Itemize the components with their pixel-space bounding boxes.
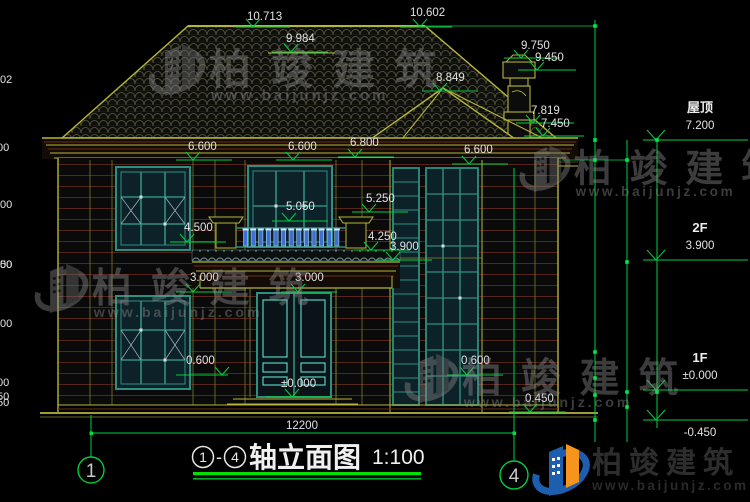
- baluster: [289, 230, 293, 246]
- chain-dimension: 3402: [0, 74, 12, 86]
- chain-dimension: 600: [0, 377, 9, 389]
- chain-dimension: 3900: [0, 318, 12, 330]
- title-underline-thin: [193, 478, 421, 480]
- level-value: 3.900: [686, 240, 715, 252]
- level-marker: 屋顶7.200: [643, 100, 748, 140]
- logo-building-orange: [566, 444, 579, 488]
- elevation-value: 7.450: [541, 118, 570, 130]
- elevation-value: 6.600: [464, 144, 493, 156]
- logo-building-blue: [549, 446, 563, 496]
- footer-brand: 柏竣建筑: [592, 446, 740, 480]
- level-value: 7.200: [686, 120, 715, 132]
- baluster: [327, 230, 331, 246]
- elevation-value: 6.600: [188, 141, 217, 153]
- baluster: [259, 230, 263, 246]
- footer-logo: 柏竣建筑 www.baijunjz.com: [529, 444, 748, 499]
- elevation-value: 6.800: [350, 137, 379, 149]
- elevation-value: 4.500: [184, 222, 213, 234]
- level-value: -0.450: [684, 427, 717, 439]
- title-axis-to: 4: [231, 449, 239, 465]
- drawing-title: 1 - 4 轴立面图 1:100: [193, 441, 425, 480]
- elevation-value: 5.050: [286, 201, 315, 213]
- elevation-value: ±0.000: [281, 378, 316, 390]
- cad-elevation-sheet: 10.7139.98410.6029.7509.4508.8497.8197.4…: [0, 0, 750, 502]
- elevation-value: 9.984: [286, 33, 315, 45]
- axis-bubble-1: 1: [86, 461, 97, 482]
- baluster: [244, 230, 248, 246]
- elevation-value: 6.600: [288, 141, 317, 153]
- chain-dimension: 600: [0, 142, 9, 154]
- elevation-value: 5.250: [366, 193, 395, 205]
- footer-url: www.baijunjz.com: [591, 478, 749, 493]
- baluster: [320, 230, 324, 246]
- total-width-dimension: 12200: [286, 420, 318, 432]
- elevation-value: 9.450: [535, 52, 564, 64]
- elevation-value: 7.819: [531, 105, 560, 117]
- elevation-marker: 10.602: [400, 7, 452, 27]
- baluster: [297, 230, 301, 246]
- chain-dimension: 450: [0, 391, 9, 403]
- baluster: [274, 230, 278, 246]
- baluster: [266, 230, 270, 246]
- chain-dimension: 7650: [0, 259, 12, 271]
- elevation-value: 3.900: [390, 241, 419, 253]
- watermark-brand: 柏竣建筑: [209, 46, 457, 93]
- title-separator: -: [216, 447, 222, 467]
- title-scale: 1:100: [372, 446, 425, 469]
- title-axis-from: 1: [199, 449, 207, 465]
- baluster: [335, 230, 339, 246]
- elevation-marker: 10.713: [236, 11, 290, 27]
- baluster: [312, 230, 316, 246]
- axis-bubble-4: 4: [509, 466, 520, 487]
- title-underline-thick: [193, 472, 421, 475]
- watermark-url: www.baijunjz.com: [575, 184, 736, 199]
- title-name: 轴立面图: [249, 441, 361, 473]
- watermark-url: www.baijunjz.com: [210, 87, 388, 104]
- level-name: 2F: [692, 220, 707, 235]
- baluster: [282, 230, 286, 246]
- chain-dimension: 3300: [0, 199, 12, 211]
- elevation-value: 9.750: [521, 40, 550, 52]
- baluster: [304, 230, 308, 246]
- overall-width-dimension: 12200: [90, 420, 517, 435]
- level-marker: -0.450: [643, 410, 748, 439]
- level-marker: 2F3.900: [643, 220, 748, 260]
- elevation-drawing: 10.7139.98410.6029.7509.4508.8497.8197.4…: [0, 0, 750, 502]
- window-2f-left: [116, 167, 190, 250]
- watermark-url: www.baijunjz.com: [463, 395, 633, 411]
- watermark-url: www.baijunjz.com: [93, 305, 263, 321]
- elevation-value: 10.602: [410, 7, 445, 19]
- elevation-value: 0.600: [186, 355, 215, 367]
- chimney: [503, 55, 535, 140]
- elevation-value: 10.713: [247, 11, 282, 23]
- level-name: 屋顶: [687, 100, 713, 115]
- baluster: [251, 230, 255, 246]
